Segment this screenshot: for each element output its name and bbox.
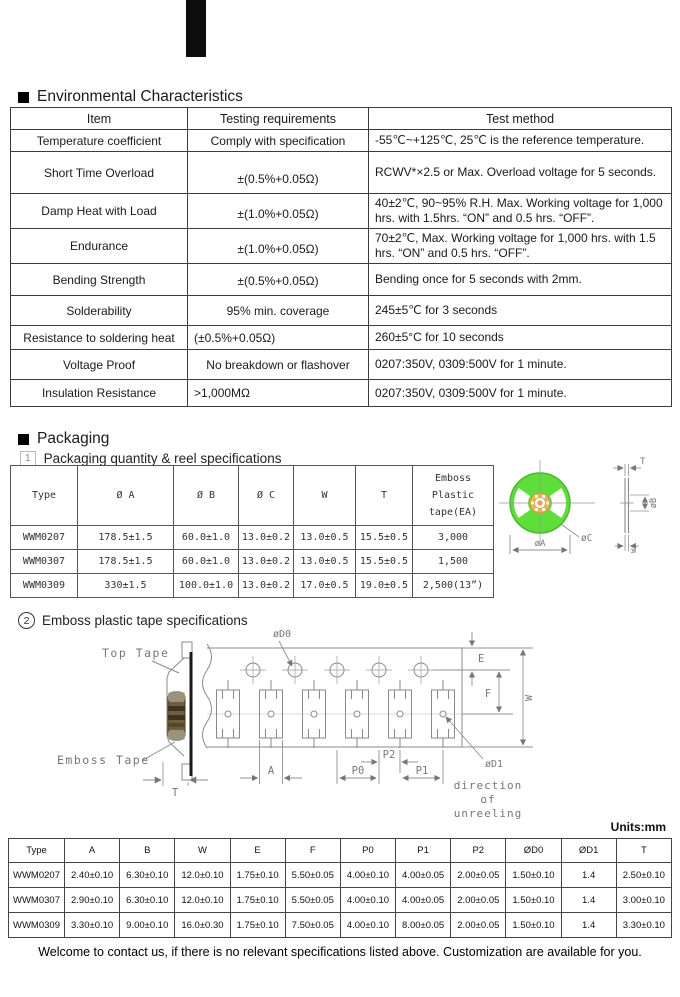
cell-method: 0207:350V, 0309:500V for 1 minute. [369, 380, 672, 407]
hub-dot [535, 508, 538, 511]
spec-sheet-page: Environmental Characteristics Item Testi… [0, 0, 680, 997]
cell-method: -55℃~+125℃, 25℃ is the reference tempera… [369, 130, 672, 152]
dim-label-w: W [524, 694, 535, 701]
col-header: B [120, 839, 175, 863]
cell: 12.0±0.10 [175, 888, 230, 913]
col-header: T [356, 466, 413, 526]
col-header: W [175, 839, 230, 863]
cell: WWM0309 [11, 574, 78, 598]
cell: 1.4 [561, 863, 616, 888]
cell-item: Voltage Proof [11, 350, 188, 380]
cell: 1.50±0.10 [506, 913, 561, 938]
col-header: Item [11, 108, 188, 130]
dim-label-f: F [485, 688, 491, 700]
cell: 1.75±0.10 [230, 913, 285, 938]
packaging-title-text: Packaging [37, 430, 109, 448]
cell: 178.5±1.5 [78, 526, 174, 550]
tape-subsection-title: 2 Emboss plastic tape specifications [18, 612, 248, 629]
top-tape-label: Top Tape [102, 646, 169, 660]
cell-method: 70±2℃, Max. Working voltage for 1,000 hr… [369, 229, 672, 264]
units-note: Units:mm [611, 820, 666, 834]
cell: 19.0±0.5 [356, 574, 413, 598]
cell: 4.00±0.05 [396, 863, 451, 888]
col-header: Type [11, 466, 78, 526]
cell: WWM0307 [11, 550, 78, 574]
cell: 2,500(13”) [413, 574, 494, 598]
cell: 8.00±0.05 [396, 913, 451, 938]
cell-item: Solderability [11, 296, 188, 326]
table-row: Voltage Proof No breakdown or flashover … [11, 350, 672, 380]
cell: 5.50±0.05 [285, 863, 340, 888]
dim-label-p0: P0 [352, 765, 365, 777]
col-header: W [294, 466, 356, 526]
cell: 1.75±0.10 [230, 888, 285, 913]
cell: 4.00±0.10 [340, 888, 395, 913]
unreeling-note-line3: unreeling [454, 807, 523, 820]
col-header: ØD0 [506, 839, 561, 863]
cell: 2.90±0.10 [65, 888, 120, 913]
sprocket-crosshairs [240, 656, 434, 684]
unreeling-note-line2: of [480, 793, 495, 806]
cell: 13.0±0.5 [294, 550, 356, 574]
chip-resistor [168, 692, 185, 740]
reel-subsection-title: 1 Packaging quantity & reel specificatio… [20, 451, 281, 466]
tape-dimensions-table: Type A B W E F P0 P1 P2 ØD0 ØD1 T WWM020… [8, 838, 672, 938]
cell-req: No breakdown or flashover [188, 350, 369, 380]
col-header: Ø B [174, 466, 239, 526]
cell: 1.75±0.10 [230, 863, 285, 888]
col-header: A [65, 839, 120, 863]
cell-method: RCWV*×2.5 or Max. Overload voltage for 5… [369, 152, 672, 194]
cell: 15.5±0.5 [356, 550, 413, 574]
hub-dot [535, 495, 538, 498]
cell-req: ±(1.0%+0.05Ω) [188, 194, 369, 229]
cell: 13.0±0.2 [239, 574, 294, 598]
dim-label-reel-a: øA [535, 539, 546, 549]
col-header: Ø A [78, 466, 174, 526]
cell-method: 0207:350V, 0309:500V for 1 minute. [369, 350, 672, 380]
cell: 17.0±0.5 [294, 574, 356, 598]
cell: 4.00±0.05 [396, 888, 451, 913]
col-header: F [285, 839, 340, 863]
col-header: Test method [369, 108, 672, 130]
cell: 6.30±0.10 [120, 888, 175, 913]
cell: 1.50±0.10 [506, 888, 561, 913]
cell: 15.5±0.5 [356, 526, 413, 550]
col-header: Ø C [239, 466, 294, 526]
table-row: Endurance ±(1.0%+0.05Ω) 70±2℃, Max. Work… [11, 229, 672, 264]
cell: 3.00±0.10 [616, 888, 671, 913]
cell: 13.0±0.5 [294, 526, 356, 550]
contact-footer-note: Welcome to contact us, if there is no re… [0, 945, 680, 959]
square-bullet-icon [18, 434, 29, 445]
cell: 330±1.5 [78, 574, 174, 598]
square-bullet-icon [18, 92, 29, 103]
cell-req: ±(0.5%+0.05Ω) [188, 264, 369, 296]
cell-item: Insulation Resistance [11, 380, 188, 407]
cell-method: 245±5℃ for 3 seconds [369, 296, 672, 326]
cell: 178.5±1.5 [78, 550, 174, 574]
leader-line [279, 641, 292, 666]
table-row: WWM0307 2.90±0.10 6.30±0.10 12.0±0.10 1.… [9, 888, 672, 913]
environmental-table: Item Testing requirements Test method Te… [10, 107, 672, 407]
cell-req: >1,000MΩ [188, 380, 369, 407]
unreeling-note-line1: direction [454, 779, 523, 792]
cell: 9.00±0.10 [120, 913, 175, 938]
dim-label-reel-c: øC [581, 533, 592, 544]
cell-req: (±0.5%+0.05Ω) [188, 326, 369, 350]
number-2-badge: 2 [18, 612, 35, 629]
col-header: T [616, 839, 671, 863]
cell: 13.0±0.2 [239, 550, 294, 574]
table-row: WWM0309 330±1.5 100.0±1.0 13.0±0.2 17.0±… [11, 574, 494, 598]
table-row: Bending Strength ±(0.5%+0.05Ω) Bending o… [11, 264, 672, 296]
table-row: Resistance to soldering heat (±0.5%+0.05… [11, 326, 672, 350]
cell: 4.00±0.10 [340, 863, 395, 888]
table-row: WWM0307 178.5±1.5 60.0±1.0 13.0±0.2 13.0… [11, 550, 494, 574]
col-header: ØD1 [561, 839, 616, 863]
cell-item: Endurance [11, 229, 188, 264]
dim-label-d1: øD1 [485, 759, 503, 770]
cell-req: ±(0.5%+0.05Ω) [188, 152, 369, 194]
table-header-row: Type Ø A Ø B Ø C W T Emboss Plastic tape… [11, 466, 494, 526]
dim-label-a: A [268, 765, 275, 777]
col-header: Emboss Plastic tape(EA) [413, 466, 494, 526]
cell: 3.30±0.10 [65, 913, 120, 938]
table-row: Damp Heat with Load ±(1.0%+0.05Ω) 40±2℃,… [11, 194, 672, 229]
dim-label-t: T [172, 787, 179, 799]
cell-req: Comply with specification [188, 130, 369, 152]
hub-dot [542, 495, 545, 498]
tape-subtitle-text: Emboss plastic tape specifications [42, 613, 248, 628]
cell: 1.4 [561, 913, 616, 938]
emboss-tape-label: Emboss Tape [57, 753, 150, 767]
cell: 3,000 [413, 526, 494, 550]
cell: 1.4 [561, 888, 616, 913]
cell: 16.0±0.30 [175, 913, 230, 938]
cell: 60.0±1.0 [174, 550, 239, 574]
cell: 60.0±1.0 [174, 526, 239, 550]
dim-label-reel-b: øB [649, 498, 659, 508]
cell: 7.50±0.05 [285, 913, 340, 938]
cell-req: ±(1.0%+0.05Ω) [188, 229, 369, 264]
col-header: P1 [396, 839, 451, 863]
reel-diagram: øA øC T øB W [495, 440, 680, 600]
reel-spec-table: Type Ø A Ø B Ø C W T Emboss Plastic tape… [10, 465, 494, 598]
hub-dot [542, 508, 545, 511]
cell: 4.00±0.10 [340, 913, 395, 938]
cell-method: Bending once for 5 seconds with 2mm. [369, 264, 672, 296]
tape-diagram: Top Tape Emboss Tape T øD0 øD1 E F W A P… [55, 628, 620, 828]
cell: 3.30±0.10 [616, 913, 671, 938]
cell: WWM0207 [9, 863, 65, 888]
cell-req: 95% min. coverage [188, 296, 369, 326]
table-row: WWM0207 178.5±1.5 60.0±1.0 13.0±0.2 13.0… [11, 526, 494, 550]
hub-dot [546, 501, 549, 504]
cell: 100.0±1.0 [174, 574, 239, 598]
col-header: E [230, 839, 285, 863]
table-header-row: Item Testing requirements Test method [11, 108, 672, 130]
cell: 13.0±0.2 [239, 526, 294, 550]
break-line [203, 644, 212, 748]
env-section-title: Environmental Characteristics [18, 88, 243, 106]
cell-method: 40±2℃, 90~95% R.H. Max. Working voltage … [369, 194, 672, 229]
cell: 1,500 [413, 550, 494, 574]
number-1-badge: 1 [20, 451, 36, 466]
cell-item: Bending Strength [11, 264, 188, 296]
cell-item: Temperature coefficient [11, 130, 188, 152]
cell: 2.00±0.05 [451, 863, 506, 888]
hub-dot [531, 501, 534, 504]
cell-item: Resistance to soldering heat [11, 326, 188, 350]
cell-item: Damp Heat with Load [11, 194, 188, 229]
cell: WWM0309 [9, 913, 65, 938]
cell: 6.30±0.10 [120, 863, 175, 888]
cell-method: 260±5°C for 10 seconds [369, 326, 672, 350]
env-title-text: Environmental Characteristics [37, 88, 243, 106]
dim-label-e: E [478, 653, 484, 665]
dim-label-reel-t: T [640, 457, 646, 467]
cell-item: Short Time Overload [11, 152, 188, 194]
cell: WWM0307 [9, 888, 65, 913]
cell: 2.00±0.05 [451, 913, 506, 938]
packaging-section-title: Packaging [18, 430, 109, 448]
top-black-bar [186, 0, 206, 57]
cell: WWM0207 [11, 526, 78, 550]
col-header: Testing requirements [188, 108, 369, 130]
table-header-row: Type A B W E F P0 P1 P2 ØD0 ØD1 T [9, 839, 672, 863]
cell: 5.50±0.05 [285, 888, 340, 913]
cell: 2.40±0.10 [65, 863, 120, 888]
dim-label-p2: P2 [383, 749, 396, 761]
dim-label-reel-w: W [630, 548, 638, 553]
table-row: Insulation Resistance >1,000MΩ 0207:350V… [11, 380, 672, 407]
table-row: Solderability 95% min. coverage 245±5℃ f… [11, 296, 672, 326]
cell: 12.0±0.10 [175, 863, 230, 888]
table-row: WWM0207 2.40±0.10 6.30±0.10 12.0±0.10 1.… [9, 863, 672, 888]
reel-subtitle-text: Packaging quantity & reel specifications [44, 451, 282, 466]
cell: 1.50±0.10 [506, 863, 561, 888]
hub-center [537, 500, 542, 505]
col-header: P2 [451, 839, 506, 863]
col-header: Type [9, 839, 65, 863]
cell: 2.00±0.05 [451, 888, 506, 913]
table-row: Short Time Overload ±(0.5%+0.05Ω) RCWV*×… [11, 152, 672, 194]
dim-label-p1: P1 [416, 765, 429, 777]
col-header: P0 [340, 839, 395, 863]
table-row: Temperature coefficient Comply with spec… [11, 130, 672, 152]
dim-label-d0: øD0 [273, 629, 291, 640]
table-row: WWM0309 3.30±0.10 9.00±0.10 16.0±0.30 1.… [9, 913, 672, 938]
cell: 2.50±0.10 [616, 863, 671, 888]
